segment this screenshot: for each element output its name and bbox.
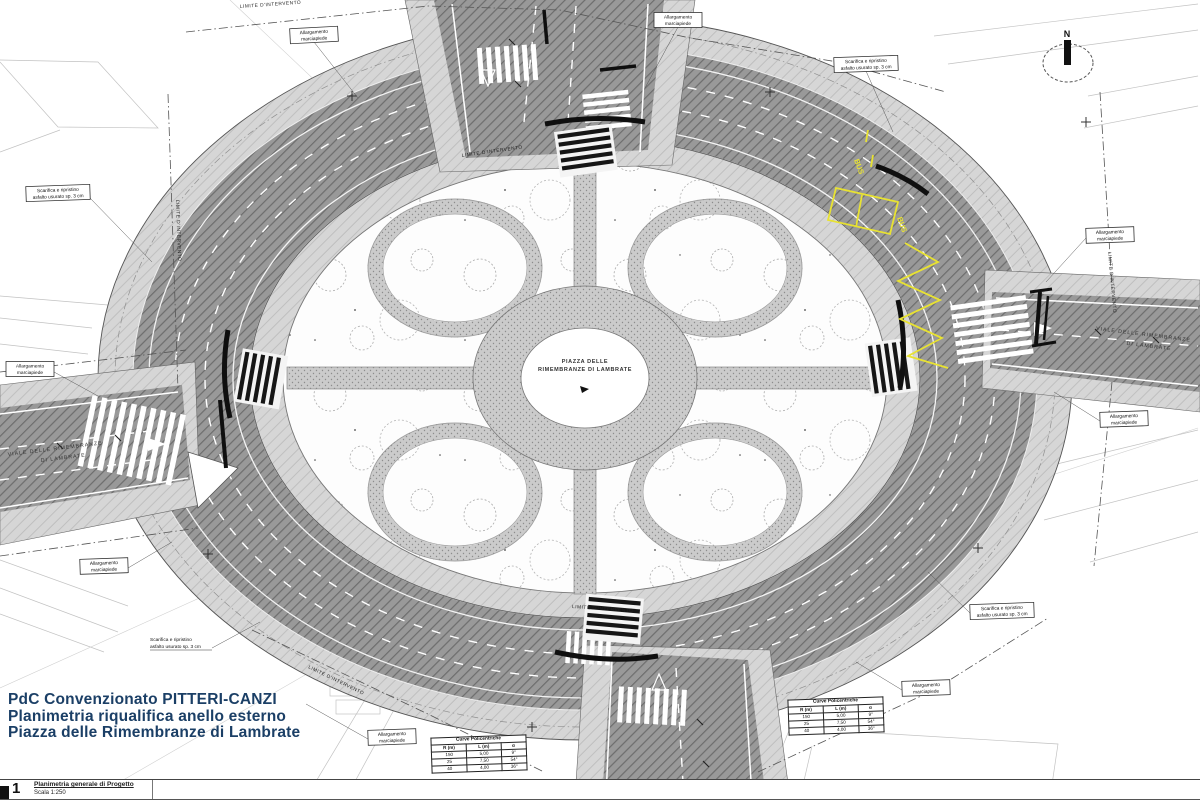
drawing-caption: Planimetria generale di Progetto: [34, 781, 134, 788]
svg-text:Allargamento: Allargamento: [1096, 229, 1125, 236]
svg-text:Allargamento: Allargamento: [664, 15, 693, 21]
svg-text:Allargamento: Allargamento: [90, 560, 119, 567]
north-arrow: N: [1043, 29, 1093, 82]
svg-text:Allargamento: Allargamento: [912, 682, 941, 689]
title-line3: Piazza delle Rimembranze di Lambrate: [8, 725, 300, 742]
svg-text:Allargamento: Allargamento: [1110, 413, 1139, 420]
north-arrow-needle: [1064, 40, 1071, 65]
sheet-number: 1: [12, 780, 20, 797]
curve-table-1: Curve Policentriche R (m) L (m) α 1505,0…: [430, 734, 527, 773]
annotation-scarifica: Scarifica e ripristino asfalto usurato s…: [834, 55, 898, 72]
svg-text:Allargamento: Allargamento: [378, 731, 407, 738]
footer-strip: 1 Planimetria generale di Progetto Scala…: [0, 779, 1200, 800]
annotation-allargamento: Allargamento marciapiede: [6, 362, 54, 377]
annotation-scarifica: Scarifica e ripristino asfalto usurato s…: [970, 602, 1034, 619]
svg-text:marciapiede: marciapiede: [665, 21, 691, 27]
annotation-scarifica: Scarifica e ripristino asfalto usurato s…: [26, 184, 90, 201]
title-line1: PdC Convenzionato PITTERI-CANZI: [8, 692, 300, 709]
svg-text:Allargamento: Allargamento: [16, 364, 45, 370]
annotation-allargamento: Allargamento marciapiede: [902, 680, 950, 697]
title-block: PdC Convenzionato PITTERI-CANZI Planimet…: [8, 692, 300, 742]
north-label: N: [1064, 29, 1071, 39]
inner-crossing-south: [582, 594, 644, 645]
svg-text:marciapiede: marciapiede: [17, 370, 43, 376]
annotation-allargamento: Allargamento marciapiede: [1100, 411, 1148, 428]
annotation-allargamento: Allargamento marciapiede: [654, 13, 702, 28]
drawing-scale: Scala 1:250: [34, 790, 66, 796]
annotation-allargamento: Allargamento marciapiede: [1086, 227, 1134, 244]
inner-crossing-north: [554, 124, 618, 178]
svg-text:asfalto usurato sp. 3 cm: asfalto usurato sp. 3 cm: [150, 644, 201, 650]
footer-corner-chip: [0, 786, 9, 799]
svg-text:marciapiede: marciapiede: [1111, 420, 1138, 427]
svg-text:marciapiede: marciapiede: [1097, 236, 1124, 243]
inner-crossing-east: [865, 337, 918, 397]
svg-text:Scarifica e ripristino: Scarifica e ripristino: [150, 637, 192, 643]
center-label-line1: PIAZZA DELLE: [562, 359, 608, 365]
inner-crossing-west: [234, 348, 289, 409]
curve-table-2: Curve Policentriche R (m) L (m) α 1505,0…: [787, 696, 884, 735]
title-line2: Planimetria riqualifica anello esterno: [8, 709, 300, 726]
svg-text:marciapiede: marciapiede: [91, 567, 118, 574]
site-plan-drawing: PIAZZA DELLE RIMEMBRANZE DI LAMBRATE: [0, 0, 1200, 800]
annotation-scarifica-plain: Scarifica e ripristino asfalto usurato s…: [150, 637, 212, 650]
plan-sheet: PIAZZA DELLE RIMEMBRANZE DI LAMBRATE: [0, 0, 1200, 800]
annotation-allargamento: Allargamento marciapiede: [80, 558, 128, 575]
svg-text:marciapiede: marciapiede: [913, 689, 940, 696]
annotation-allargamento: Allargamento marciapiede: [368, 729, 416, 746]
annotation-allargamento: Allargamento marciapiede: [290, 26, 339, 43]
svg-text:marciapiede: marciapiede: [379, 738, 406, 745]
central-circle: [521, 328, 649, 428]
center-label-line2: RIMEMBRANZE DI LAMBRATE: [538, 367, 632, 373]
footer-divider: [152, 780, 153, 799]
limite-label: LIMITE D'INTERVENTO: [240, 0, 302, 10]
